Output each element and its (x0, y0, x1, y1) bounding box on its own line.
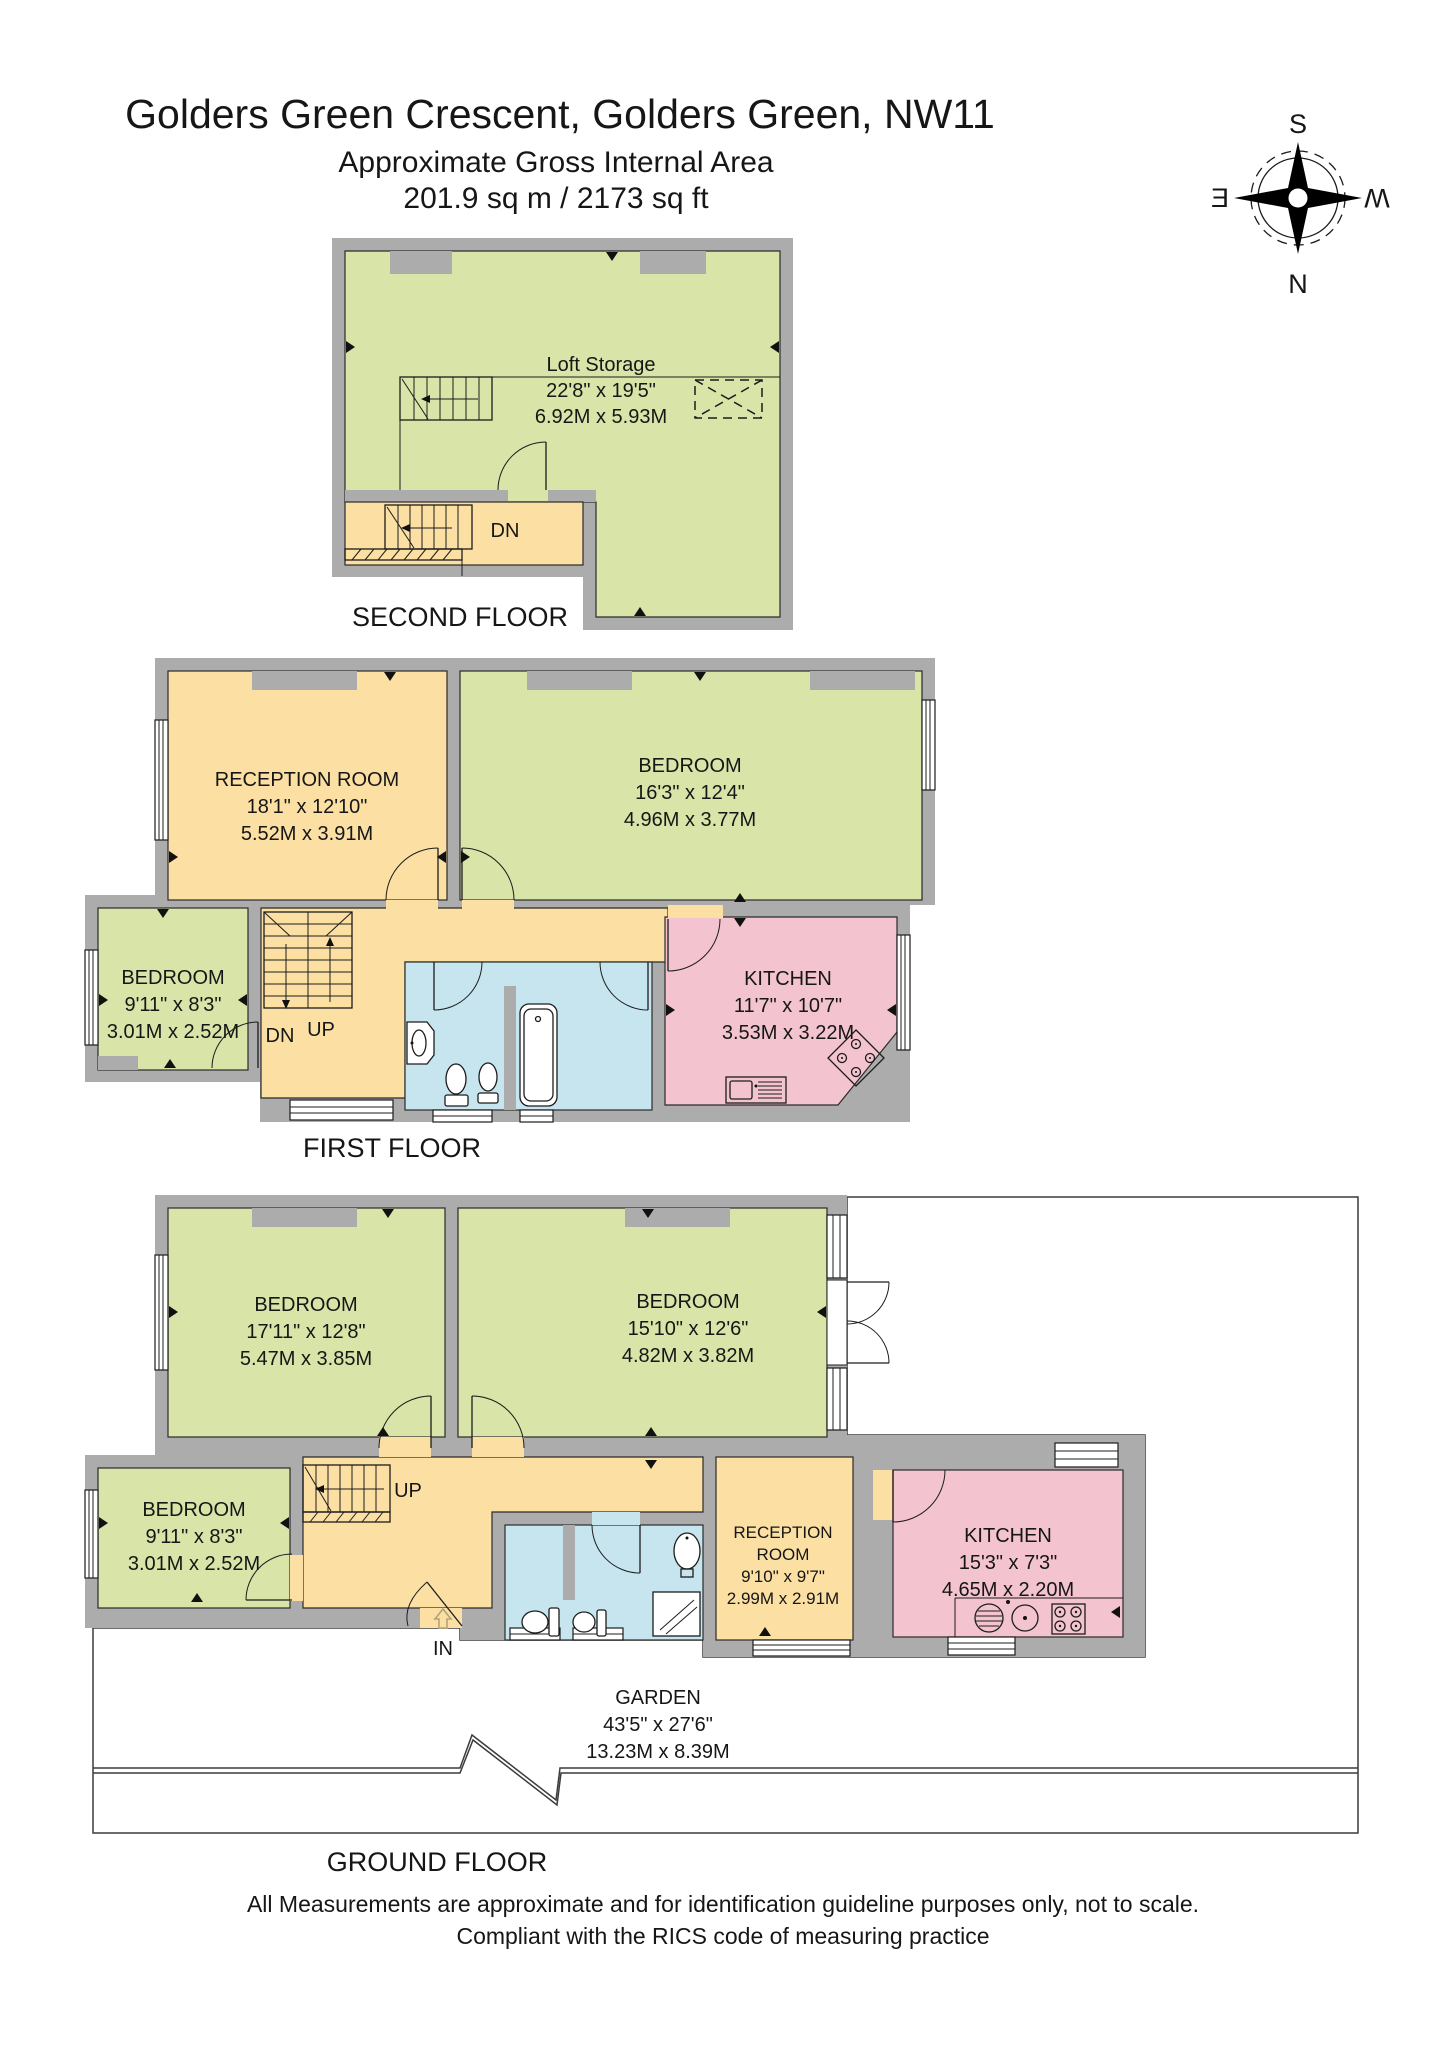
door-opening (668, 905, 723, 918)
ground-floor-plan: BEDROOM 17'11" x 12'8" 5.47M x 3.85M BED… (85, 1195, 1358, 1877)
first-floor-plan: RECEPTION ROOM 18'1" x 12'10" 5.52M x 3.… (85, 658, 935, 1163)
stair-down-label: DN (491, 520, 520, 542)
page-title: Golders Green Crescent, Golders Green, N… (125, 91, 995, 137)
window (827, 1368, 847, 1430)
loft-room-name: Loft Storage (547, 354, 656, 376)
reception-ground-dims-metric: 2.99M x 2.91M (727, 1589, 839, 1608)
kitchen-ground-name: KITCHEN (964, 1525, 1052, 1547)
reception-ground-name2: ROOM (757, 1545, 810, 1564)
door-opening (386, 900, 438, 909)
garden-name: GARDEN (615, 1687, 701, 1709)
bedroom-small-first-name: BEDROOM (121, 967, 224, 989)
compass-west-label: W (1364, 183, 1390, 213)
door-opening (290, 1555, 303, 1601)
stair-up-label: UP (307, 1019, 335, 1041)
reception-first-dims-metric: 5.52M x 3.91M (241, 823, 373, 845)
loft-dims-imperial: 22'8" x 19'5" (546, 380, 656, 402)
compass-rose-icon: S N E W (1211, 109, 1390, 299)
compass-south-label: S (1289, 109, 1307, 139)
window (85, 1490, 98, 1578)
french-doors (827, 1280, 889, 1365)
chimney-recess (640, 251, 706, 274)
garden-dims-metric: 13.23M x 8.39M (586, 1741, 729, 1763)
window (827, 1215, 847, 1278)
window (433, 1110, 492, 1122)
window (753, 1640, 850, 1656)
window (85, 950, 98, 1045)
window (948, 1637, 1015, 1655)
total-area-value: 201.9 sq m / 2173 sq ft (403, 182, 709, 215)
subtitle-area: Approximate Gross Internal Area (338, 146, 774, 179)
reception-ground-dims-imperial: 9'10" x 9'7" (741, 1567, 825, 1586)
kitchen-first-dims-imperial: 11'7" x 10'7" (734, 995, 842, 1017)
second-floor-label: SECOND FLOOR (352, 602, 568, 632)
kitchen-ground-dims-imperial: 15'3" x 7'3" (959, 1552, 1058, 1574)
compass-hub (1289, 189, 1308, 208)
header: Golders Green Crescent, Golders Green, N… (125, 91, 995, 215)
disclaimer-line2: Compliant with the RICS code of measurin… (456, 1923, 989, 1949)
window (1055, 1443, 1118, 1467)
bedroom-small-ground-name: BEDROOM (142, 1499, 245, 1521)
floorplan-page: Golders Green Crescent, Golders Green, N… (0, 0, 1447, 2048)
window (897, 935, 910, 1050)
bedroom-left-ground-dims-imperial: 17'11" x 12'8" (246, 1321, 365, 1343)
disclaimer-line1: All Measurements are approximate and for… (247, 1891, 1199, 1917)
stair-down-label: DN (266, 1025, 295, 1047)
chimney-recess (252, 671, 357, 690)
shower-symbol (653, 1592, 700, 1636)
window (155, 1255, 168, 1370)
bedroom-small-first-dims-metric: 3.01M x 2.52M (107, 1021, 239, 1043)
ground-floor-label: GROUND FLOOR (327, 1847, 548, 1877)
chimney-recess (252, 1208, 357, 1227)
reception-ground-name1: RECEPTION (733, 1523, 832, 1542)
bedroom-small-first (98, 908, 248, 1070)
wall-notch (98, 1056, 138, 1070)
door-opening (873, 1470, 893, 1520)
chimney-recess (625, 1208, 730, 1227)
kitchen-first-name: KITCHEN (744, 968, 832, 990)
internal-wall (345, 490, 508, 502)
bedroom-left-ground-name: BEDROOM (254, 1294, 357, 1316)
bedroom-right-ground-dims-metric: 4.82M x 3.82M (622, 1345, 754, 1367)
bedroom-right-first-dims-metric: 4.96M x 3.77M (624, 809, 756, 831)
garden-dims-imperial: 43'5" x 27'6" (603, 1714, 713, 1736)
chimney-recess (810, 671, 915, 690)
compass-east-label: E (1211, 183, 1229, 213)
bedroom-small-first-dims-imperial: 9'11" x 8'3" (124, 994, 221, 1016)
window (155, 720, 168, 840)
kitchen-ground-dims-metric: 4.65M x 2.20M (942, 1579, 1074, 1601)
window (520, 1110, 553, 1122)
second-floor-landing (345, 502, 583, 565)
reception-first-name: RECEPTION ROOM (215, 769, 399, 791)
floorplan-drawing: Golders Green Crescent, Golders Green, N… (0, 0, 1447, 2048)
footer-disclaimer: All Measurements are approximate and for… (247, 1891, 1199, 1949)
toilet-symbol (445, 1064, 468, 1106)
second-floor-plan: Loft Storage 22'8" x 19'5" 6.92M x 5.93M… (332, 238, 793, 632)
compass-north-label: N (1288, 269, 1308, 299)
internal-wall (548, 490, 596, 502)
shower-divider-wall (563, 1525, 575, 1600)
toilet-symbol (478, 1063, 498, 1103)
sink-symbol (407, 1022, 434, 1064)
stair-up-label: UP (394, 1480, 422, 1502)
loft-dims-metric: 6.92M x 5.93M (535, 406, 667, 428)
bedroom-right-ground-name: BEDROOM (636, 1291, 739, 1313)
door-opening (379, 1437, 431, 1457)
bedroom-right-ground-dims-imperial: 15'10" x 12'6" (628, 1318, 749, 1340)
door-opening (462, 900, 514, 909)
bedroom-right-first-dims-imperial: 16'3" x 12'4" (635, 782, 745, 804)
window (290, 1100, 393, 1120)
bedroom-left-ground-dims-metric: 5.47M x 3.85M (240, 1348, 372, 1370)
door-opening (592, 1512, 640, 1525)
door-opening (472, 1437, 524, 1457)
bathroom-divider-wall (504, 986, 516, 1110)
reception-first-dims-imperial: 18'1" x 12'10" (247, 796, 368, 818)
bathtub-symbol (520, 1004, 557, 1106)
window (922, 700, 935, 790)
entrance-label: IN (433, 1638, 453, 1660)
bedroom-small-ground-dims-metric: 3.01M x 2.52M (128, 1553, 260, 1575)
chimney-recess (390, 251, 452, 274)
chimney-recess (527, 671, 632, 690)
kitchen-first-dims-metric: 3.53M x 3.22M (722, 1022, 854, 1044)
bedroom-small-ground-dims-imperial: 9'11" x 8'3" (145, 1526, 242, 1548)
bedroom-right-first-name: BEDROOM (638, 755, 741, 777)
first-floor-label: FIRST FLOOR (303, 1133, 481, 1163)
